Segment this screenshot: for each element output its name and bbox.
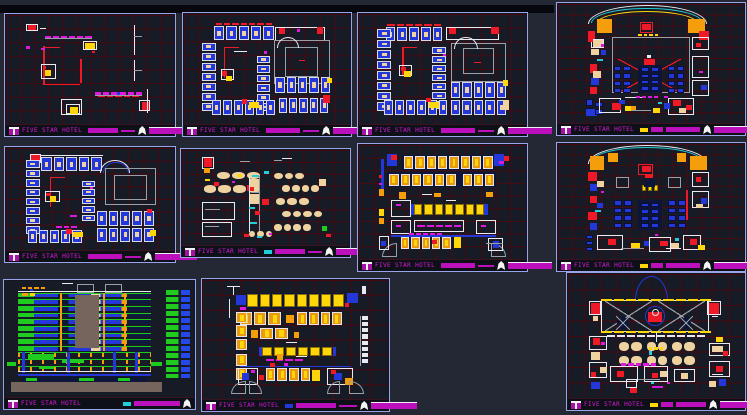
drawing-title-bar: FIVE STAR HOTEL [568, 398, 744, 410]
plan-block [591, 49, 598, 55]
plan-block [43, 84, 80, 85]
plan-block [396, 225, 401, 227]
plan-module [660, 347, 663, 349]
plan-module [648, 96, 652, 98]
plan-module [279, 98, 287, 113]
plan-block [719, 379, 726, 385]
plan-module [412, 174, 421, 187]
plan-module [688, 299, 698, 301]
plan-block [491, 27, 499, 34]
plan-module [236, 312, 247, 323]
plan-module [651, 223, 659, 228]
plan-module [476, 204, 484, 214]
basement-plan-window[interactable]: FIVE STAR HOTEL [4, 13, 176, 137]
plan-module [241, 23, 247, 25]
plan-block [486, 192, 493, 198]
plan-module [636, 363, 641, 365]
plan-module [651, 363, 656, 365]
plan-module [667, 335, 675, 337]
plan-module [411, 237, 419, 248]
basement-plan-drawing [6, 15, 174, 124]
plan-block [233, 286, 235, 296]
plan-block [597, 19, 612, 32]
plan-module [362, 316, 368, 320]
plan-module [474, 174, 483, 187]
plan-block [588, 37, 594, 42]
drawing-title-text: FIVE STAR HOTEL [22, 128, 82, 134]
plan-block [379, 183, 382, 185]
room-strip [672, 356, 695, 365]
title-block-bar [371, 402, 417, 409]
plan-block [319, 179, 326, 187]
plan-module [297, 294, 307, 307]
plan-block [632, 110, 651, 111]
plan-module [97, 228, 107, 242]
plan-block [591, 382, 600, 389]
plan-block [642, 24, 651, 30]
plan-block [429, 102, 439, 108]
plan-block [454, 237, 461, 247]
building-section-window[interactable]: FIVE STAR HOTEL [3, 279, 196, 410]
plan-block [655, 234, 659, 236]
plan-module [289, 98, 297, 113]
room-strip [236, 312, 247, 350]
plan-module [433, 27, 443, 41]
roof-level-plan-window[interactable]: FIVE STAR HOTEL [566, 272, 746, 411]
plan-block [18, 371, 150, 372]
plan-module [423, 174, 432, 187]
plan-block [286, 315, 293, 323]
plan-module [654, 185, 658, 191]
plan-block [250, 222, 257, 224]
plan-block [214, 182, 219, 186]
plan-block [45, 38, 92, 39]
plan-module [303, 224, 311, 231]
north-arrow-icon [325, 247, 333, 256]
plan-block [284, 363, 288, 365]
level-mark-block [264, 250, 272, 254]
plan-module [624, 208, 632, 213]
plan-block [113, 352, 116, 373]
plan-module [218, 185, 231, 193]
plan-module [249, 231, 255, 238]
title-block-bar [714, 262, 747, 269]
room-strip [266, 359, 303, 361]
plan-block [709, 381, 716, 387]
plan-module [41, 157, 52, 171]
drawing-symbol-icon [9, 253, 19, 261]
plan-block [270, 363, 276, 367]
plan-block [591, 78, 598, 85]
plan-block [712, 316, 717, 317]
plan-module [614, 200, 622, 205]
room-strip [601, 299, 710, 301]
room-outline [202, 202, 235, 220]
scale-bar [441, 128, 475, 133]
plan-module [414, 204, 422, 214]
room-strip [651, 203, 659, 228]
plan-module [362, 347, 368, 351]
plan-block [62, 283, 73, 284]
room-strip [97, 211, 154, 225]
plan-module [166, 346, 191, 351]
room-strip [677, 66, 684, 93]
plan-block [379, 218, 384, 224]
plan-block [95, 95, 142, 96]
plan-block [503, 100, 510, 110]
drawing-symbol-icon [561, 262, 571, 270]
stair-fan [231, 381, 246, 394]
plan-module [651, 74, 659, 78]
plan-block [723, 351, 728, 356]
plan-module [651, 203, 659, 208]
plan-module [232, 23, 238, 25]
plan-block [660, 371, 667, 377]
plan-module [251, 26, 261, 40]
plan-block [590, 196, 597, 203]
room-strip [260, 328, 288, 340]
room-outline [692, 56, 709, 77]
plan-module [474, 82, 483, 97]
plan-block [240, 161, 250, 162]
room-strip [451, 82, 506, 97]
plan-module [166, 304, 191, 309]
plan-module [397, 27, 407, 41]
plan-block [647, 55, 651, 57]
room-strip [614, 66, 621, 93]
plan-module [166, 339, 191, 344]
room-strip [668, 66, 675, 93]
plan-module [474, 100, 483, 115]
plan-block [45, 47, 60, 48]
plan-module [132, 228, 142, 242]
room-strip [389, 174, 456, 187]
plan-module [362, 322, 368, 326]
plan-module [663, 331, 673, 333]
plan-module [26, 189, 39, 196]
plan-module [274, 224, 282, 231]
plan-module [614, 299, 624, 301]
room-strip [409, 233, 442, 235]
plan-block [379, 209, 384, 216]
plan-block [50, 196, 57, 202]
plan-block [234, 51, 247, 52]
plan-module [97, 211, 107, 225]
restaurant-floor-plan-window[interactable]: FIVE STAR HOTEL [180, 148, 351, 258]
plan-module [276, 198, 286, 205]
plan-module [314, 211, 323, 218]
plan-module [641, 209, 649, 214]
plan-module [461, 156, 470, 169]
drawing-title-text: FIVE STAR HOTEL [574, 263, 634, 269]
plan-module [224, 23, 230, 25]
room-strip [274, 173, 304, 180]
plan-module [647, 335, 655, 337]
room-strip [216, 23, 272, 25]
plan-block [399, 192, 406, 199]
plan-module [644, 34, 648, 36]
plan-block [486, 243, 503, 244]
plan-block [237, 174, 242, 177]
plan-module [166, 318, 191, 323]
room-strip [22, 287, 45, 289]
plan-block [644, 179, 655, 187]
plan-block [675, 238, 679, 240]
plan-module [623, 73, 630, 78]
room-strip [377, 29, 390, 110]
plan-module [287, 77, 296, 94]
plan-module [485, 174, 494, 187]
room-strip [621, 363, 656, 365]
room-outline [114, 175, 148, 201]
plan-module [263, 26, 273, 40]
plan-module [26, 179, 39, 186]
title-block-bar [508, 127, 552, 134]
plan-block [621, 248, 643, 249]
plan-module [233, 185, 246, 193]
plan-block [317, 27, 324, 34]
plan-block [360, 316, 361, 366]
third-floor-plan-window[interactable]: FIVE STAR HOTEL [357, 12, 528, 137]
plan-block [709, 303, 720, 314]
plan-block [40, 28, 47, 29]
plan-module [236, 325, 247, 336]
plan-block [147, 209, 152, 213]
plan-module [623, 88, 630, 93]
plan-block [60, 293, 62, 351]
plan-module [216, 23, 222, 25]
plan-block [712, 346, 723, 352]
room-outline [202, 222, 232, 237]
room-strip [417, 225, 460, 227]
level-mark-block [650, 403, 658, 407]
plan-module [166, 332, 191, 337]
plan-module [649, 347, 652, 349]
plan-module [322, 347, 332, 357]
plan-block [11, 382, 162, 392]
entrance-level-plan-window[interactable]: FIVE STAR HOTEL [556, 142, 746, 272]
room-strip [282, 185, 319, 192]
plan-block [619, 100, 625, 104]
plan-block [39, 366, 54, 369]
plan-block [205, 226, 218, 227]
plan-module [446, 174, 455, 187]
plan-module [299, 98, 307, 113]
plan-module [287, 198, 297, 205]
north-arrow-icon [322, 126, 330, 135]
plan-module [333, 294, 343, 307]
plan-module [109, 228, 119, 242]
drawing-title-text: FIVE STAR HOTEL [22, 254, 82, 260]
restaurant-floor-plan-drawing [182, 150, 349, 245]
plan-block [242, 373, 249, 380]
plan-block [277, 354, 283, 360]
fourth-floor-plan-window[interactable]: FIVE STAR HOTEL [4, 146, 176, 263]
plan-block [590, 156, 605, 171]
plan-block [323, 95, 330, 103]
plan-module [41, 287, 45, 289]
plan-module [643, 363, 648, 365]
canopy-arc [277, 37, 299, 48]
plan-module [377, 40, 390, 48]
plan-block [75, 295, 100, 348]
guestroom-floor-plan-a-window[interactable]: FIVE STAR HOTEL [357, 143, 528, 272]
plan-module [401, 237, 409, 248]
plan-module [668, 66, 675, 71]
plan-block [204, 168, 211, 173]
plan-module [668, 223, 676, 228]
plan-block [134, 25, 135, 56]
plan-module [657, 335, 665, 337]
plan-block [698, 245, 705, 250]
plan-module [54, 157, 65, 171]
plan-module [636, 96, 640, 98]
stair-fan [249, 381, 262, 394]
plan-block [251, 370, 255, 372]
plan-module [302, 185, 310, 192]
plan-module [389, 174, 398, 187]
plan-module [387, 24, 394, 26]
plan-module [435, 204, 443, 214]
plan-block [696, 43, 702, 47]
plan-block [658, 102, 662, 104]
room-outline [668, 177, 681, 187]
guestroom-floor-plan-b-window[interactable]: FIVE STAR HOTEL [201, 278, 390, 412]
ground-floor-plan-window[interactable]: FIVE STAR HOTEL [556, 2, 746, 136]
plan-module [700, 331, 710, 333]
room-strip [386, 27, 443, 41]
plan-block [396, 204, 401, 206]
plan-block [259, 177, 260, 232]
plan-block [255, 211, 260, 215]
north-arrow-icon [709, 400, 717, 409]
plan-block [638, 379, 659, 380]
plan-module [472, 156, 481, 169]
plan-block [591, 372, 596, 377]
plan-block [503, 80, 508, 86]
plan-module [586, 99, 593, 106]
plan-block [404, 71, 411, 77]
plan-block [673, 100, 680, 106]
plan-module [166, 290, 191, 295]
plan-block [80, 59, 82, 83]
plan-module [614, 66, 621, 71]
plan-module [26, 170, 39, 177]
plan-block [322, 226, 327, 231]
plan-module [18, 359, 150, 364]
scale-bar [266, 128, 300, 133]
plan-block [588, 172, 597, 181]
plan-module [432, 74, 445, 81]
plan-block [297, 29, 300, 31]
plan-block [92, 51, 95, 53]
plan-module [434, 24, 441, 26]
plan-module [432, 56, 445, 63]
scale-bar [339, 405, 357, 407]
plan-module [401, 174, 410, 187]
north-arrow-icon [703, 125, 711, 134]
plan-module [26, 160, 39, 167]
guestroom-floor-plan-b-drawing [203, 280, 388, 399]
second-floor-plan-window[interactable]: FIVE STAR HOTEL [182, 12, 352, 137]
plan-block [30, 293, 36, 296]
plan-block [37, 294, 45, 297]
plan-module [257, 56, 270, 64]
drawing-title-text: FIVE STAR HOTEL [584, 402, 644, 408]
plan-module [310, 98, 318, 113]
plan-block [591, 352, 600, 359]
scale-bar [125, 256, 141, 258]
plan-block [474, 62, 481, 63]
cad-viewport[interactable]: FIVE STAR HOTELFIVE STAR HOTELFIVE STAR … [0, 0, 747, 415]
plan-block [286, 342, 297, 343]
drawing-title-text: FIVE STAR HOTEL [21, 401, 81, 407]
plan-module [377, 29, 390, 37]
plan-module [437, 233, 442, 235]
north-arrow-icon [183, 399, 191, 408]
plan-block [250, 194, 258, 204]
plan-block [45, 70, 52, 77]
plan-module [624, 223, 632, 228]
plan-block [601, 44, 605, 46]
cross-brace [616, 316, 630, 330]
plan-module [641, 86, 649, 90]
room-strip [619, 342, 642, 351]
fourth-floor-plan-drawing [6, 148, 174, 250]
canopy-arc [635, 276, 668, 301]
plan-module [631, 342, 641, 351]
plan-module [272, 294, 282, 307]
plan-block [712, 374, 723, 375]
room-outline [616, 177, 629, 187]
room-outline [139, 100, 151, 111]
drawing-symbol-icon [185, 248, 195, 256]
plan-module [422, 237, 430, 248]
plan-module [445, 225, 452, 227]
plan-block [660, 241, 667, 247]
plan-module [651, 86, 659, 90]
plan-module [415, 156, 424, 169]
plan-block [326, 234, 331, 238]
plan-module [641, 216, 649, 221]
plan-module [298, 77, 307, 94]
plan-module [678, 223, 686, 228]
plan-module [166, 297, 191, 302]
plan-module [254, 312, 266, 325]
plan-module [678, 208, 686, 213]
plan-module [321, 294, 331, 307]
plan-module [623, 66, 630, 71]
room-strip [638, 34, 658, 36]
plan-module [617, 335, 625, 337]
plan-block [70, 107, 78, 115]
plan-module [71, 226, 76, 228]
plan-block [656, 332, 657, 342]
plan-module [586, 241, 593, 245]
plan-block [262, 199, 269, 205]
plan-block [649, 351, 653, 355]
room-strip [641, 67, 649, 91]
plan-module [204, 185, 217, 193]
plan-block [597, 203, 603, 209]
plan-module [202, 53, 215, 61]
room-strip [672, 342, 695, 351]
entrance-level-plan-drawing [558, 144, 744, 259]
level-mark-block [123, 402, 131, 406]
plan-module [247, 294, 257, 307]
plan-block [150, 230, 155, 236]
north-arrow-icon [360, 401, 368, 410]
